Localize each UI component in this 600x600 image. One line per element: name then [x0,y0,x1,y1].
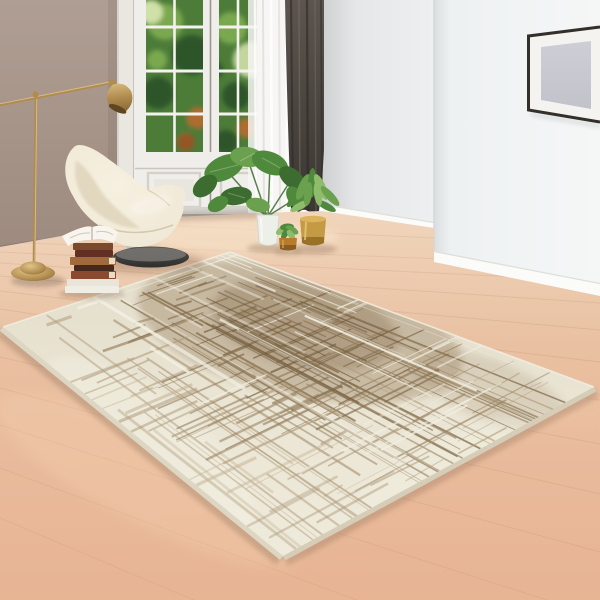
sheer-fold [279,0,280,211]
room-photo [0,0,600,600]
vase-highlight [261,218,262,241]
far-wall-shade [322,0,356,215]
book [65,286,119,293]
book-page-edge [109,258,115,264]
foliage-blob [177,133,195,151]
lamp-pole-joint [33,92,39,98]
foliage-blob [147,50,167,70]
foliage-blob [222,82,250,110]
sheer-fold [255,0,256,208]
sheer-fold [271,0,272,209]
book [67,279,119,286]
gold-pot-highlight [305,222,306,240]
book [74,265,114,271]
lamp-base-dome [20,262,46,275]
sheer-fold [263,0,264,210]
picture-frame [529,27,600,128]
book [75,250,113,257]
gold-pot-rim [300,216,326,222]
foliage-blob [142,77,174,109]
chair-base-plate-top [116,248,186,262]
wall-corner-shade [434,0,450,262]
frame-art [541,41,591,109]
book-page-edge [109,272,115,278]
book [73,243,113,250]
curtain-fold [321,0,322,190]
scene-photo [0,0,600,600]
